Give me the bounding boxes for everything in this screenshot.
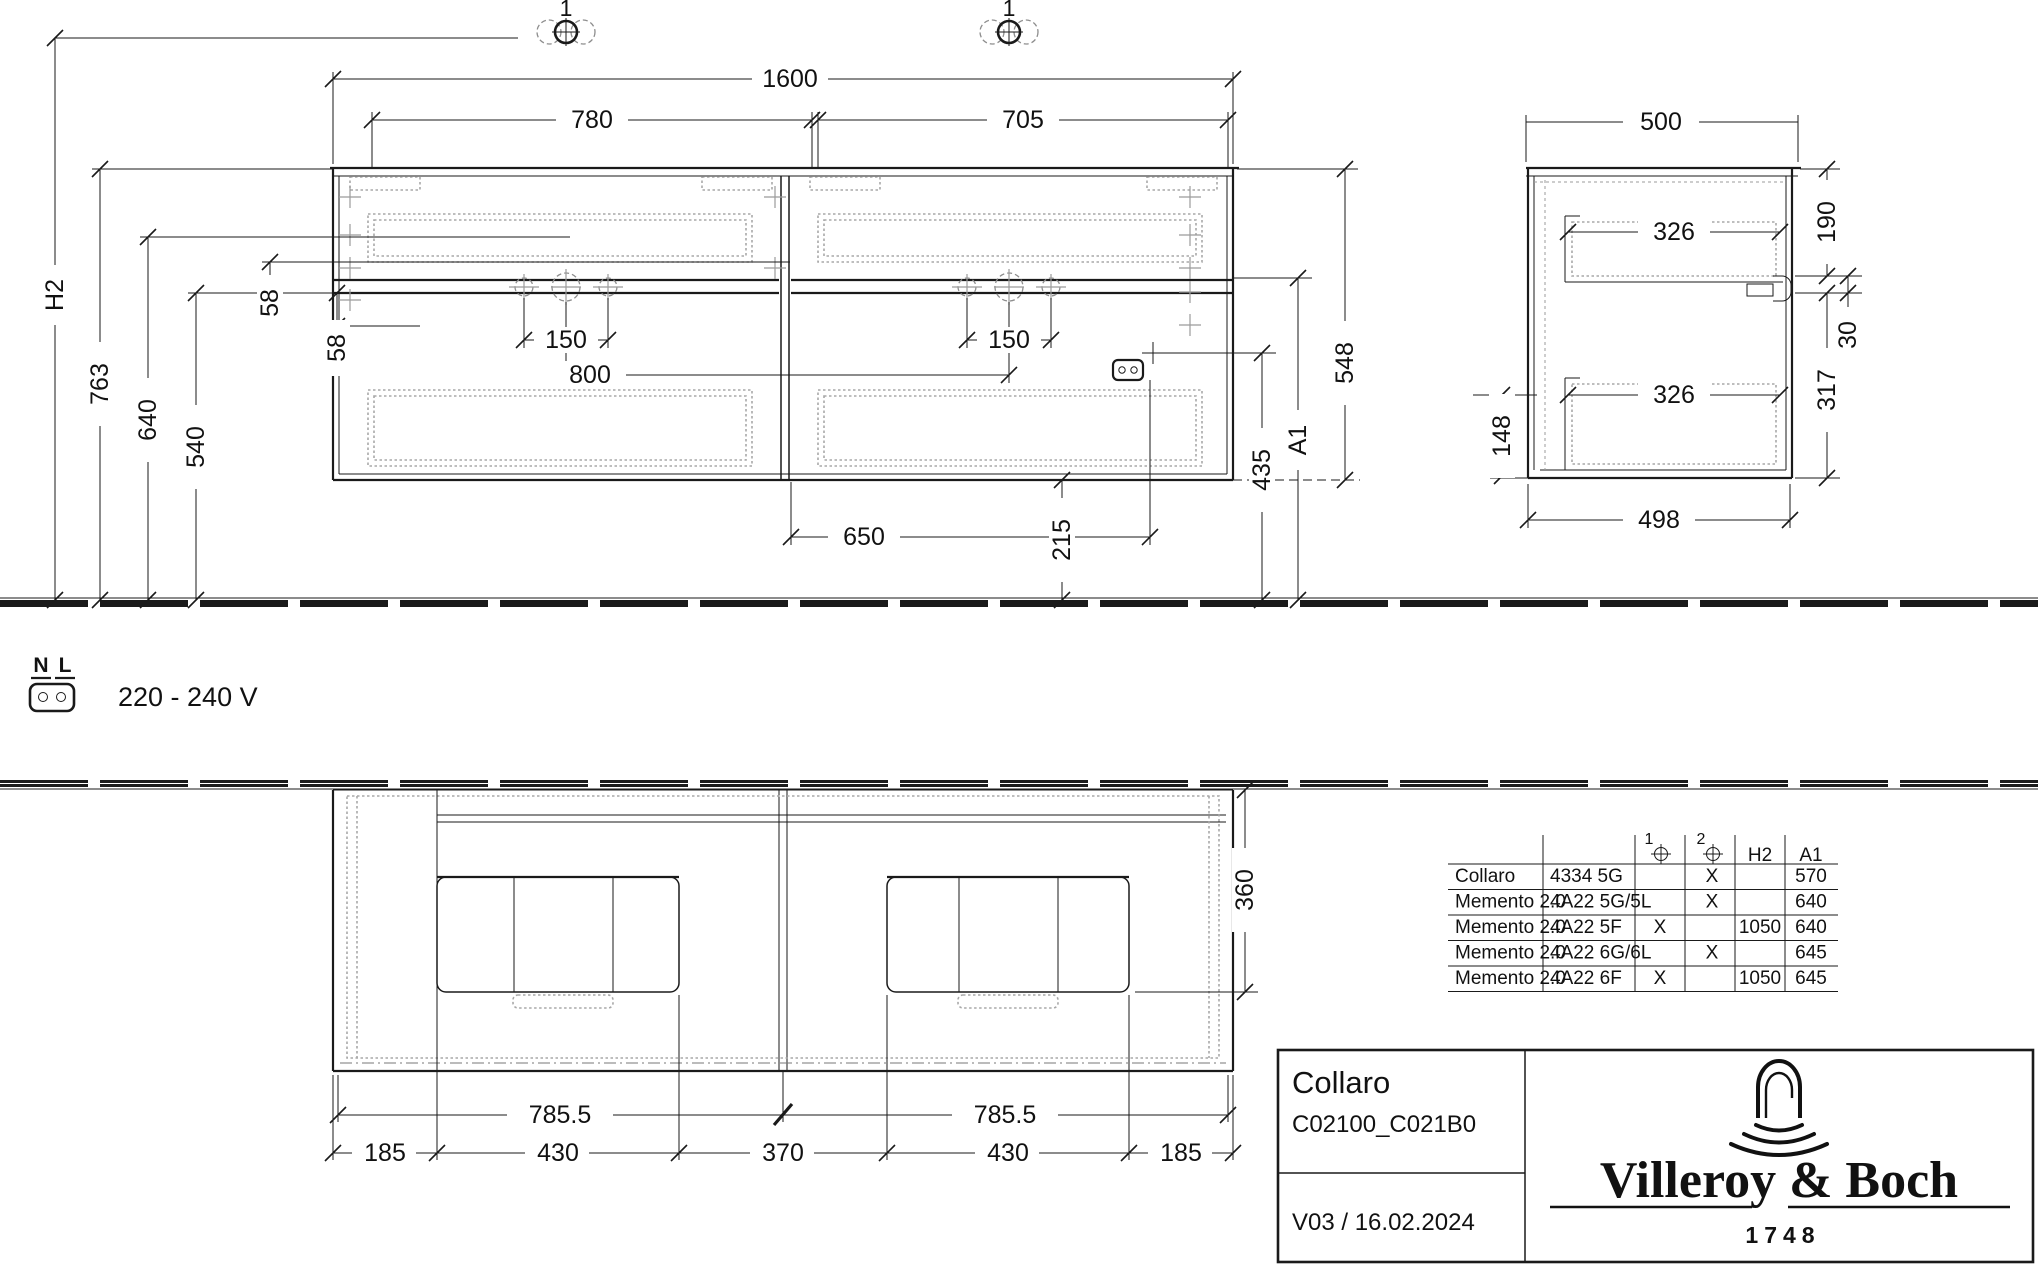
dim-left-width: 780 <box>571 106 613 134</box>
dim-module-right: 785.5 <box>974 1101 1037 1129</box>
table-row-2: Memento 2.0 4A22 5G/5L X 640 <box>1455 892 1827 913</box>
dim-top-zone: 190 <box>1813 201 1841 243</box>
version-date: V03 / 16.02.2024 <box>1292 1209 1475 1236</box>
row5-a1: 645 <box>1795 968 1827 989</box>
table-row-3: Memento 2.0 4A22 5F X 1050 640 <box>1455 917 1827 938</box>
marker-1-right: 1 <box>1003 0 1016 21</box>
faucet-marker-right-icon <box>980 18 1038 46</box>
table-header-h2: H2 <box>1748 845 1772 866</box>
brand-logo: Villeroy & Boch 1748 <box>1550 1061 2010 1248</box>
row5-h2: 1050 <box>1739 968 1781 989</box>
drawing-canvas: 1 1 N L 220 - 240 V <box>0 0 2038 1268</box>
dim-top-height: 763 <box>86 363 114 405</box>
dim-shelf-upper: 326 <box>1653 218 1695 246</box>
wall-line <box>0 780 2038 789</box>
row3-m1: X <box>1654 917 1667 938</box>
dim-wall-height: H2 <box>41 279 69 311</box>
row5-code: 4A22 6F <box>1550 968 1622 989</box>
fountain-icon <box>1731 1061 1827 1155</box>
drain-fitting-icon <box>1747 276 1791 301</box>
variant-table: 1 2 H2 A1 Collaro 4334 5G X 570 Memento … <box>1448 831 1838 992</box>
row1-a1: 570 <box>1795 866 1827 887</box>
socket-icon <box>1113 360 1143 380</box>
row4-code: 4A22 6G/6L <box>1550 943 1651 964</box>
table-header-marker1: 1 <box>1645 831 1654 848</box>
brand-name: Villeroy & Boch <box>1600 1152 1958 1209</box>
product-name: Collaro <box>1292 1065 1390 1100</box>
dim-gap-30: 30 <box>1834 321 1862 349</box>
title-block: Collaro C02100_C021B0 V03 / 16.02.2024 V… <box>1278 1050 2033 1262</box>
row3-a1: 640 <box>1795 917 1827 938</box>
dim-height-a1: A1 <box>1284 425 1312 456</box>
table-row-1: Collaro 4334 5G X 570 <box>1455 866 1827 887</box>
dim-lower-zone: 317 <box>1813 369 1841 411</box>
dim-overall-width: 1600 <box>762 65 818 93</box>
power-connection: N L 220 - 240 V <box>30 654 258 712</box>
basin-cutout-right <box>887 877 1129 992</box>
dim-shelf-lower: 326 <box>1653 381 1695 409</box>
side-view <box>1526 168 1801 478</box>
dim-bottom-gap: 148 <box>1488 415 1516 457</box>
dim-seg4: 430 <box>987 1139 1029 1167</box>
front-view <box>330 168 1239 480</box>
row5-m1: X <box>1654 968 1667 989</box>
row4-m2: X <box>1706 943 1719 964</box>
table-header-marker2: 2 <box>1697 831 1706 848</box>
dim-seg3: 370 <box>762 1139 804 1167</box>
dim-basin-height: 640 <box>134 399 162 441</box>
marker-1-left: 1 <box>560 0 573 21</box>
dim-gap-lower: 58 <box>323 334 351 362</box>
dim-body-depth: 498 <box>1638 506 1680 534</box>
faucet-marker-left-icon <box>537 18 595 46</box>
dim-seg1: 185 <box>364 1139 406 1167</box>
dim-right-width: 705 <box>1002 106 1044 134</box>
dim-module-left: 785.5 <box>529 1101 592 1129</box>
row1-code: 4334 5G <box>1550 866 1623 887</box>
faucet-holes-icon <box>509 269 1066 305</box>
floor-line <box>0 598 2038 607</box>
row4-a1: 645 <box>1795 943 1827 964</box>
crosshair-1-icon <box>1651 844 1671 864</box>
terminal-l-label: L <box>59 654 72 677</box>
brand-year: 1748 <box>1745 1222 1820 1248</box>
voltage-label: 220 - 240 V <box>118 682 258 712</box>
basin-cutout-left <box>437 877 679 992</box>
dim-socket-height: 435 <box>1248 449 1276 491</box>
row1-series: Collaro <box>1455 866 1515 887</box>
dim-socket-distance: 650 <box>843 523 885 551</box>
plan-view-dimensions: 360 785.5 785.5 185 430 370 430 185 <box>352 848 1259 1167</box>
row3-h2: 1050 <box>1739 917 1781 938</box>
table-header-a1: A1 <box>1799 845 1822 866</box>
plan-view <box>333 790 1233 1071</box>
front-view-dimensions: 1600 780 705 150 150 800 650 H2 763 640 … <box>41 64 1359 582</box>
dim-gap-upper: 58 <box>256 289 284 317</box>
dim-cabinet-height: 548 <box>1331 342 1359 384</box>
dim-seg2: 430 <box>537 1139 579 1167</box>
table-row-4: Memento 2.0 4A22 6G/6L X 645 <box>1455 943 1827 964</box>
row3-code: 4A22 5F <box>1550 917 1622 938</box>
dim-depth: 500 <box>1640 108 1682 136</box>
terminal-n-label: N <box>33 654 48 677</box>
row2-a1: 640 <box>1795 892 1827 913</box>
table-row-5: Memento 2.0 4A22 6F X 1050 645 <box>1455 968 1827 989</box>
row1-m2: X <box>1706 866 1719 887</box>
dim-hole-spacing-right: 150 <box>988 326 1030 354</box>
dim-floor-clearance: 215 <box>1048 519 1076 561</box>
row2-code: 4A22 5G/5L <box>1550 892 1651 913</box>
dim-hole-distance: 800 <box>569 361 611 389</box>
dim-hole-spacing-left: 150 <box>545 326 587 354</box>
dim-apron-height: 540 <box>182 426 210 468</box>
dim-seg5: 185 <box>1160 1139 1202 1167</box>
crosshair-2-icon <box>1703 844 1723 864</box>
dim-counter-depth: 360 <box>1231 869 1259 911</box>
technical-drawing-sheet: 1 1 N L 220 - 240 V <box>0 0 2038 1268</box>
article-number: C02100_C021B0 <box>1292 1111 1476 1138</box>
row2-m2: X <box>1706 892 1719 913</box>
outlet-socket-icon <box>30 684 74 711</box>
